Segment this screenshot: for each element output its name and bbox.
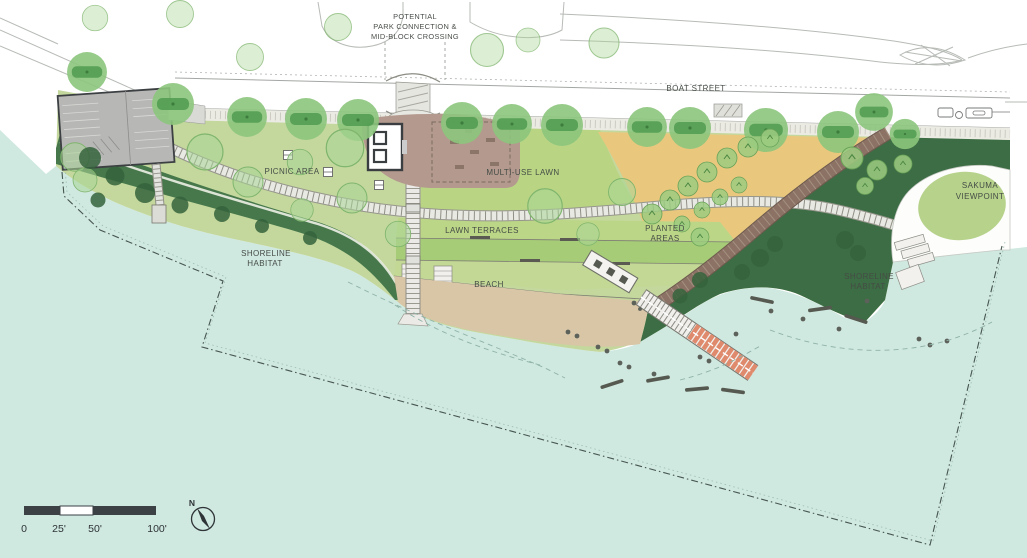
label-sakuma-2: VIEWPOINT (956, 192, 1005, 201)
label-planted-1: PLANTED (645, 224, 685, 233)
picnic-table (375, 181, 384, 190)
site-plan-map: POTENTIAL PARK CONNECTION & MID-BLOCK CR… (0, 0, 1027, 558)
label-shoreline-west-1: SHORELINE (241, 249, 291, 258)
label-lawn-terraces: LAWN TERRACES (445, 226, 519, 235)
label-sakuma-1: SAKUMA (962, 181, 998, 190)
label-planted-2: AREAS (650, 234, 679, 243)
scale-label-50: 50' (88, 523, 102, 535)
scale-label-25: 25' (52, 523, 66, 535)
site-plan-page: POTENTIAL PARK CONNECTION & MID-BLOCK CR… (0, 0, 1027, 558)
label-picnic-area: PICNIC AREA (264, 167, 319, 176)
label-potential-note-2: PARK CONNECTION & (373, 22, 456, 31)
scale-label-100: 100' (147, 523, 167, 535)
label-shoreline-east-2: HABITAT (850, 282, 885, 291)
label-boat-street: BOAT STREET (666, 84, 725, 93)
label-shoreline-west-2: HABITAT (247, 259, 282, 268)
label-multi-use-lawn: MULTI-USE LAWN (486, 168, 559, 177)
scale-label-0: 0 (21, 523, 27, 535)
label-shoreline-east-1: SHORELINE (844, 272, 894, 281)
paving-patch (714, 104, 742, 117)
label-potential-note-1: POTENTIAL (393, 12, 437, 21)
north-label: N (189, 498, 195, 508)
label-potential-note-3: MID-BLOCK CROSSING (371, 32, 459, 41)
picnic-table (324, 168, 333, 177)
label-beach: BEACH (474, 280, 504, 289)
